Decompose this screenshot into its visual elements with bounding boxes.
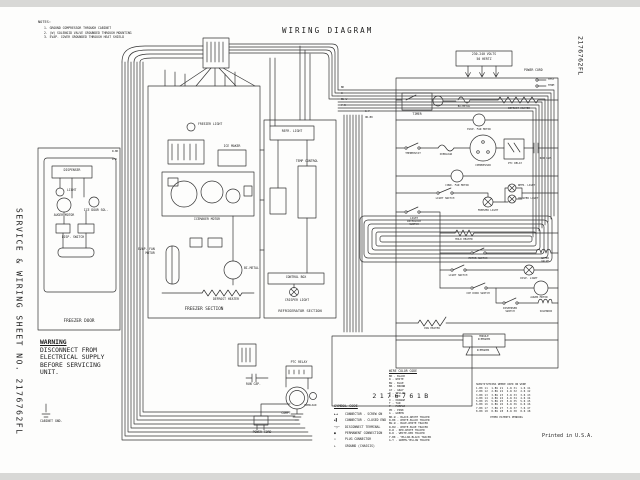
wire-tag: R-W [112,158,117,161]
subs-table: 1-BK 11 1-BU 21 1-W 31 1-R 412-BK 12 2-B… [476,387,531,413]
thermostat-label: THERMOSTAT [405,152,421,155]
legend-symbol-icon: ⊥ [334,443,345,449]
wire-color-entry: G-Y - GREEN-YELLOW TRACER [389,439,431,442]
mold-heater-symbol [455,230,474,236]
evap-fan-symbol [473,114,485,126]
cond-fan-symbol [451,170,463,182]
light-switch-symbol [437,188,453,194]
pan-heater-symbol [418,317,446,326]
sheet-number-right: 2176762FL [576,36,584,76]
patents-note: OTHER PATENTS PENDING [490,416,523,419]
legend-symbol-text: DISCONNECT TERMINAL [345,425,380,429]
run-cap-label: RUN CAP. [246,383,261,387]
notes-list: 1. GROUND COMPRESSOR THROUGH CABINET2. (… [44,26,132,40]
freezer-section-title: FREEZER SECTION [185,307,224,312]
cond-fan-label: COND. FAN MOTOR [445,184,468,187]
icemaker-label: ICEMAKER [477,349,490,352]
freezer-light-label: FREEZER LIGHT [198,123,222,127]
wire-tag: BU-W [341,98,347,101]
wire-tag: G-Y [365,110,370,113]
thermostat-switch [405,143,420,149]
evap-fan-label: EVAP. FAN MOTOR [138,248,155,255]
subs-row: 8-BK 18 8-BU 28 8-W 38 8-R 48 [476,410,531,413]
mold-heater-label: MOLD HEATER [455,238,472,241]
icemaker-motor-label: ICEMAKER MOTOR [194,218,220,222]
overload-schem-symbol [438,145,454,151]
legend-symbol-text: PERMANENT CONNECTION [345,431,382,435]
module-box-label: MODULE ICEMAKER [478,335,491,341]
cabinet-gnd-label: CABINET GND. [40,420,62,424]
solenoid-label: SOLENOID [540,310,553,313]
comp-label: COMP. [281,412,290,416]
light-switch-label: LIGHT SWITCH [436,197,455,200]
light-switch2-symbol [451,265,466,271]
motor-switch-symbol [471,248,486,254]
temp-control-label: TEMP CONTROL [296,160,318,164]
run-cap-symbol [524,143,558,153]
freezer-section-outline [148,86,260,318]
left-harness [122,46,312,440]
compressor-label: COMPRESSOR [475,164,491,167]
schem-overload-label: OVERLOAD [440,153,453,156]
motor-switch-label: MOTOR SWITCH [469,257,488,260]
auger-motor-symbol [534,281,548,295]
ground-symbol [291,409,303,420]
bimetal-label: BI-METAL [244,267,259,271]
schem-crisper-light-label: CRISPER LIGHT [518,197,538,200]
term-label: TERM [548,84,554,87]
wire-color-list: BK - BLACKW - WHITEBU - BLUEBR - BROWNGY… [389,375,431,443]
volts-line2: 50 HERTZ [477,58,492,62]
crisper-light-symbol [290,288,299,297]
schem-bimetal-label: BI-METAL [458,105,471,108]
overload-label: OVERLOAD [304,404,317,407]
warning-text: DISCONNECT FROM ELECTRICAL SUPPLY BEFORE… [40,347,104,377]
interlock-label: LIGHT INTERLOCK SWITCH [407,217,421,226]
disp-light-label: DISP. LIGHT [520,277,537,280]
schem-ptc-label: PTC RELAY [508,162,522,165]
solenoid-coil [538,299,552,303]
defrost-heater-symbol [202,290,242,296]
timer-label: TIMER [412,113,421,117]
crisper-light-schem-symbol [508,195,516,203]
disp-switch-schem-label: DISPENSER SWITCH [503,307,517,313]
subs-header: SUBSTITUTIONS WHERE USED ON WIRE [476,383,526,386]
freezer-light-symbol [483,197,493,207]
schem-auger-label: AUGER MOTOR [530,296,547,299]
pan-heater-label: PAN HEATER [424,327,440,330]
notes-heading: NOTES: [38,20,51,24]
light-switch2-label: LIGHT SWITCH [449,274,468,277]
cabinet-harness [338,90,554,332]
wiring-artwork [0,0,640,480]
ptc-relay-label: PTC RELAY [291,361,308,365]
warning-title: WARNING [40,339,67,346]
note-line: 3. EVAP. COVER GROUNDED THROUGH HEAT SHI… [44,35,132,40]
symbol-code-list: ►◄CONNECTOR - SCREW ON►▌CONNECTOR - CLOS… [334,411,386,449]
defrost-heater-label: DEFROST HEATER [213,298,239,302]
wire-tag: OR-BK [365,116,373,119]
ice-door-switch-symbol [471,283,487,289]
wire-tag: BK [341,86,344,89]
control-box-label: CONTROL BOX [286,276,307,280]
schem-refr-light-label: REFR. LIGHT [518,184,535,187]
wiring-sheet-page: WIRING DIAGRAM NOTES: 1. GROUND COMPRESS… [0,0,640,480]
crisper-light-label: CRISPER LIGHT [285,299,309,303]
symbol-code-entry: ⊥GROUND (CHASSIS) [334,443,386,449]
legend-symbol-text: CONNECTOR - CLOSED END [345,418,386,422]
disp-switch-label: DISP. SWITCH [62,236,84,240]
ice-door-sol-label: ICE DOOR SOL. [84,209,108,213]
schem-power-cord-label: POWER CORD [524,69,543,73]
cabinet-ground-symbol [42,404,50,417]
page-title: WIRING DIAGRAM [282,27,373,36]
timer-box [402,93,432,110]
legend-symbol-text: GROUND (CHASSIS) [345,444,375,448]
refr-light-label: REFR. LIGHT [282,130,303,134]
printed-in-usa: Printed in U.S.A. [542,434,593,440]
door-light-label: LIGHT [67,189,76,193]
top-connector-block [165,38,338,126]
refrigerator-section-title: REFRIGERATOR SECTION [278,309,321,313]
schem-defrost-label: DEFROST HEATER [508,107,530,110]
interlock-switch-symbol [405,207,420,213]
wire-tag: W [341,92,343,95]
disp-light-symbol [524,265,534,275]
refr-light-symbol [508,184,516,192]
sheet-number-left: SERVICE & WIRING SHEET NO. 2176762FL [14,208,23,435]
freezer-door-title: FREEZER DOOR [63,319,94,324]
symbol-code-header: SYMBOL CODE [334,404,358,408]
legend-symbol-text: CONNECTOR - SCREW ON [345,412,382,416]
timer-motor-symbol [433,96,443,106]
test-label: TEST [548,78,554,81]
dispenser-label: DISPENSER [64,169,81,173]
schem-freezer-light-label: FREEZER LIGHT [478,209,498,212]
refrigerator-section-outline [260,120,336,318]
schem-run-cap-label: RUN CAP. [540,157,553,160]
legend-symbol-text: PLUG CONNECTOR [345,437,371,441]
power-cord-label: POWER CORD [253,431,272,435]
wire-tag: Y-R [341,104,346,107]
dispenser-switch-symbol [503,298,518,304]
ice-door-switch-label: ICE DOOR SWITCH [466,292,489,295]
compressor-schem-symbol [470,135,496,161]
wire-tag: W-BK [112,150,118,153]
schem-evap-fan-label: EVAP. FAN MOTOR [467,128,490,131]
door-auger-label: AUGER MOTOR [54,214,75,218]
overload-symbol [310,393,317,400]
water-valve-label: WATER VALVE [541,257,549,263]
ptc-relay-schem-box [504,139,524,159]
ice-maker-label: ICE MAKER [224,145,241,149]
